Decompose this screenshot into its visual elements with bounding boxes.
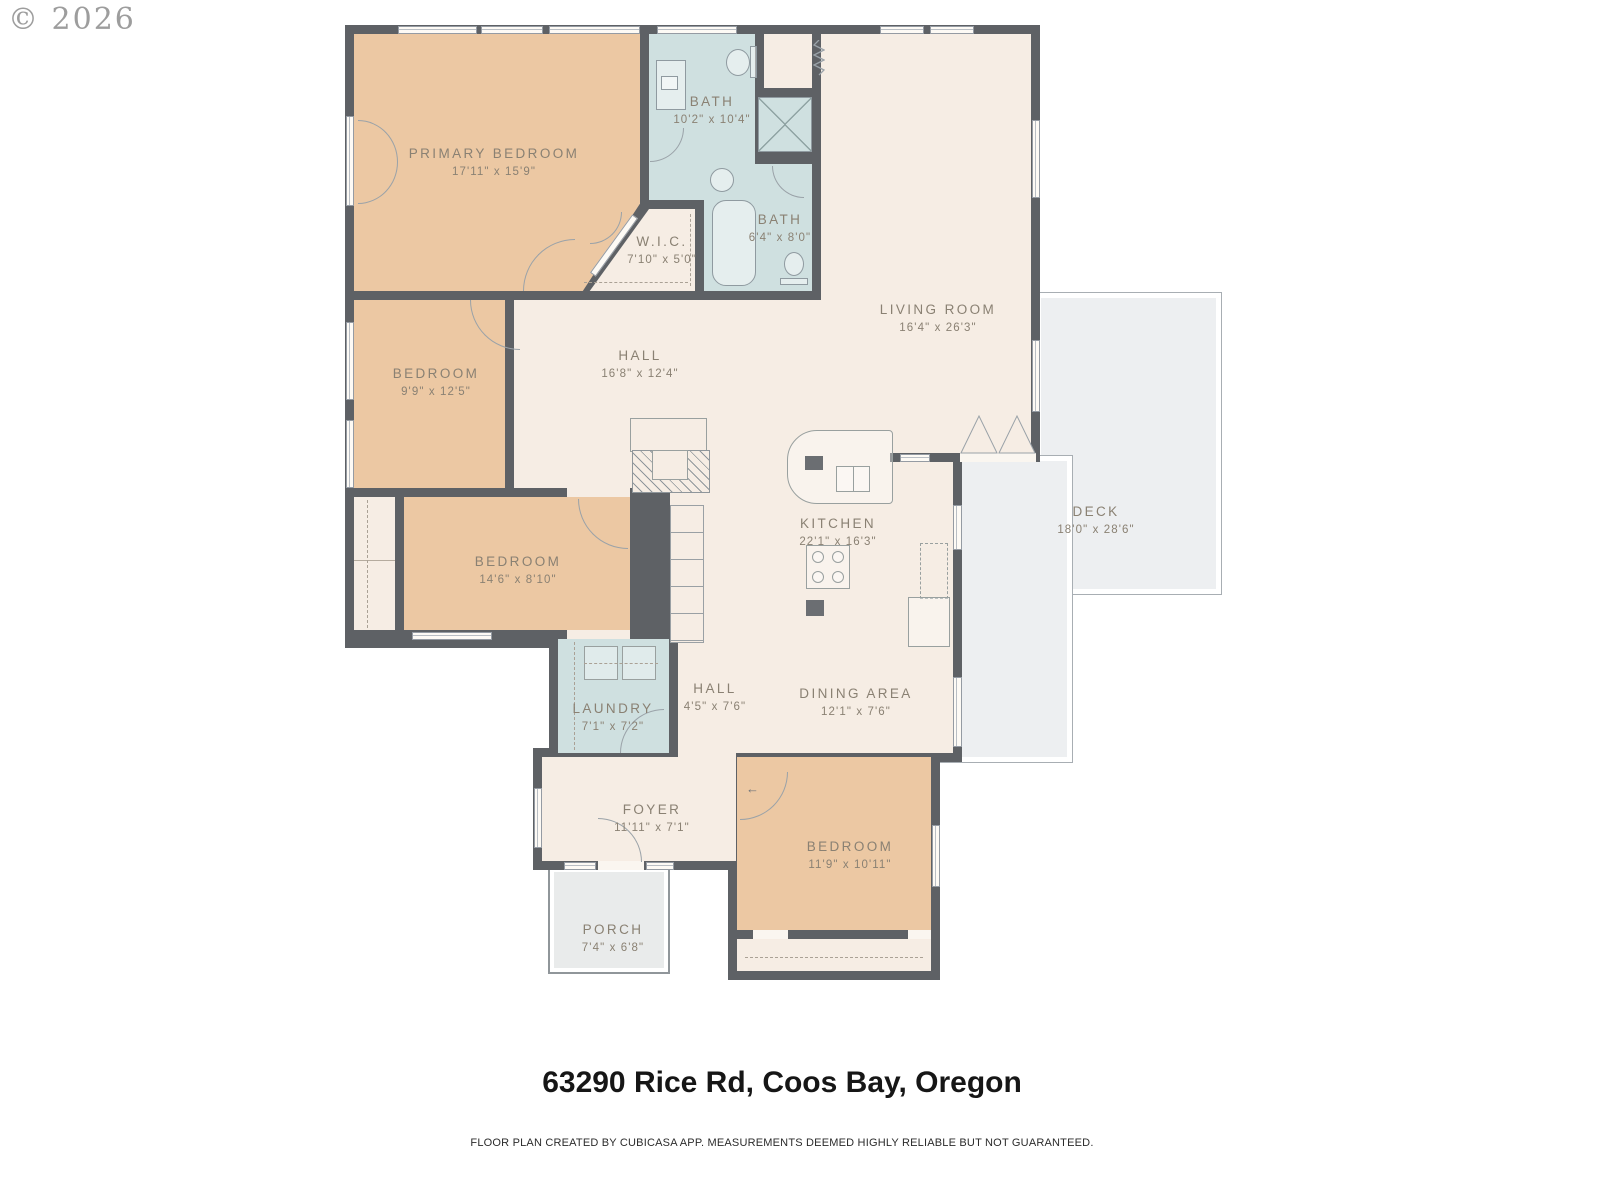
bedroom3-closet-floor [354,497,395,630]
room-label-foyer: FOYER 11'11" x 7'1" [614,802,690,834]
shelves-icon [670,505,704,643]
fireplace-hearth [630,418,707,452]
toilet-bowl-icon [784,252,804,276]
fridge-icon [920,543,948,599]
disclaimer-text: FLOOR PLAN CREATED BY CUBICASA APP. MEAS… [470,1137,1093,1149]
island-appliance-icon [806,600,824,616]
window [346,420,354,488]
stove-icon [806,545,850,589]
room-label-hall-lower: HALL 4'5" x 7'6" [684,681,746,713]
window [953,505,962,550]
bedroom4-closet-floor [737,939,931,971]
window [346,322,354,400]
front-door-opening [598,861,644,870]
closet-divider [354,560,395,561]
window [900,454,930,462]
room-label-bath-main: BATH 10'2" x 10'4" [673,94,750,126]
french-doors-icon [960,413,1036,454]
copyright-watermark: © 2026 [8,2,136,37]
room-label-bath-second: BATH 6'4" x 8'0" [749,212,811,244]
deck-door-opening [960,453,1036,462]
room-label-hall-upper: HALL 16'8" x 12'4" [601,348,678,380]
wall-segment-bedroom3-east [630,488,670,643]
entry-arrow-icon: ← [746,782,766,796]
window [880,26,924,34]
hall-foyer-opening [678,744,736,764]
laundry-dashed-line [574,642,575,750]
window [932,825,940,887]
window [657,26,737,34]
room-label-deck: DECK 18'0" x 28'6" [1057,504,1134,536]
sliding-door-line [745,957,923,958]
wall-segment-laundry-east [669,639,678,753]
burner-icon [832,571,844,583]
shower-icon [758,97,812,152]
room-label-porch: PORCH 7'4" x 6'8" [582,922,644,954]
porch-area [548,866,670,974]
room-label-kitchen: KITCHEN 22'1" x 16'3" [799,516,876,548]
sink-icon [661,76,678,90]
room-label-living-room: LIVING ROOM 16'4" x 26'3" [880,302,996,334]
toilet-bowl-icon [726,49,750,76]
window [534,788,542,848]
room-label-laundry: LAUNDRY 7'1" x 7'2" [572,701,653,733]
fireplace-firebox [652,450,688,480]
window [346,116,354,206]
closet-rod-line [367,500,368,628]
closet-opening-right [908,930,931,939]
window [564,862,596,870]
window [1032,120,1040,198]
window [549,26,640,34]
window [481,26,543,34]
window [646,862,674,870]
counter-icon [908,597,950,647]
room-label-bedroom-3: BEDROOM 14'6" x 8'10" [475,554,562,586]
burner-icon [812,551,824,563]
room-label-primary-bedroom: PRIMARY BEDROOM 17'11" x 15'9" [409,146,580,178]
window [412,632,492,640]
island-cooktop-icon [805,456,823,470]
burner-icon [832,551,844,563]
room-label-bedroom-4: BEDROOM 11'9" x 10'11" [807,839,894,871]
toilet-icon [780,278,808,285]
window [930,26,974,34]
toilet-icon [750,46,757,78]
sink-icon [710,168,734,192]
window [1032,340,1040,412]
property-address: 63290 Rice Rd, Coos Bay, Oregon [542,1066,1022,1100]
room-label-bedroom-2: BEDROOM 9'9" x 12'5" [393,366,480,398]
room-label-wic: W.I.C. 7'10" x 5'0" [627,234,697,266]
kitchen-sink-icon [836,466,870,492]
laundry-dashed-line [584,663,658,664]
floor-plan-page: © 2026 [0,0,1600,1200]
window [953,677,962,747]
burner-icon [812,571,824,583]
closet-opening-left [753,930,788,939]
room-label-dining-area: DINING AREA 12'1" x 7'6" [799,686,912,718]
water-heater-icon [813,40,825,76]
wic-dashed-line [584,282,688,283]
bath-alcove-floor [764,34,812,88]
window [398,26,477,34]
